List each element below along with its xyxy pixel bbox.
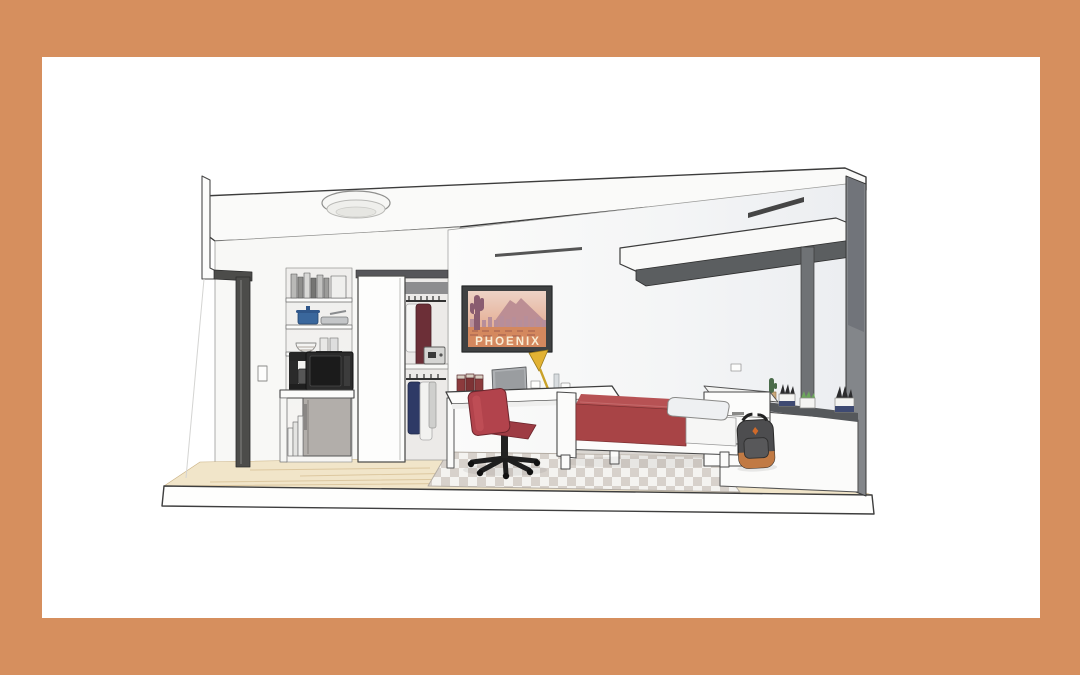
window-mullion: [801, 247, 814, 399]
room-rendering: PHOENIX: [0, 0, 1080, 675]
microwave: [306, 352, 353, 390]
phoenix-poster: PHOENIX: [462, 286, 552, 352]
wall-outlet-headboard: [731, 364, 741, 371]
poster-caption: PHOENIX: [475, 336, 541, 348]
ceiling-light: [322, 191, 390, 218]
bed-leg-left: [561, 455, 570, 469]
pillow: [667, 397, 729, 420]
kitchenette: [280, 268, 354, 462]
coffee-maker: [289, 352, 308, 390]
closet-top-shelf: [404, 282, 448, 294]
hanging-clothes-lower: [408, 382, 436, 440]
bed-footboard: [557, 392, 576, 458]
right-cut-panel: [848, 177, 864, 332]
poster-page: PHOENIX: [0, 0, 1080, 675]
chair-post: [501, 434, 508, 458]
room-illustration: PHOENIX: [162, 168, 874, 514]
closet: [356, 270, 448, 462]
light-switch: [258, 366, 267, 381]
closet-mid-shelf: [404, 364, 448, 369]
shelf-books: [291, 273, 346, 298]
wall-outlet-desk: [531, 381, 540, 388]
closet-sliding-door: [358, 276, 405, 462]
mini-fridge: [303, 398, 351, 456]
backpack-pocket: [744, 437, 769, 458]
safe: [424, 347, 445, 364]
bed-leg-right: [720, 452, 729, 467]
